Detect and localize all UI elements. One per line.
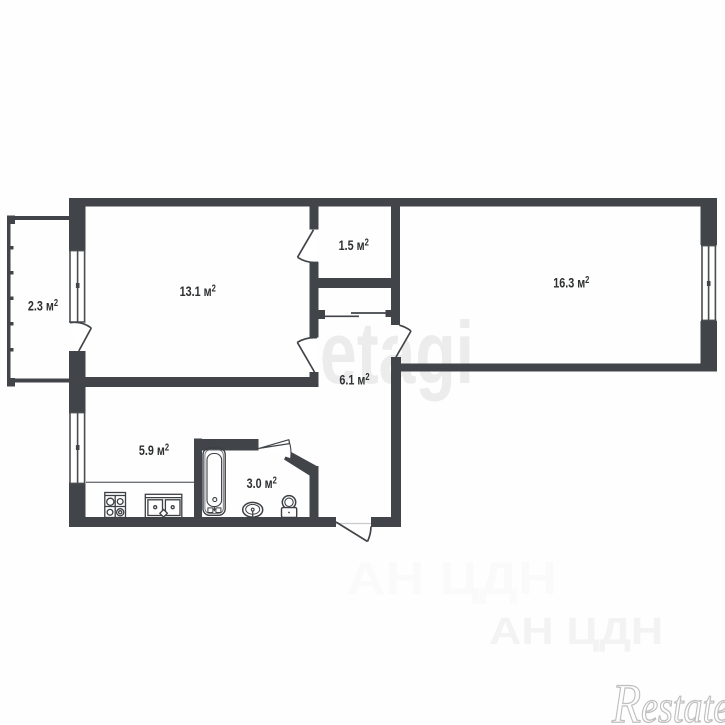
svg-text:6.1 м2: 6.1 м2 — [339, 371, 369, 388]
svg-text:16.3 м2: 16.3 м2 — [553, 274, 589, 291]
svg-text:АН ЦДН: АН ЦДН — [346, 552, 557, 604]
svg-text:Restate: Restate — [611, 674, 725, 725]
svg-text:АН ЦДН: АН ЦДН — [489, 609, 663, 652]
svg-text:13.1 м2: 13.1 м2 — [180, 283, 216, 300]
svg-text:1.5 м2: 1.5 м2 — [339, 237, 369, 254]
svg-text:2.3 м2: 2.3 м2 — [28, 297, 58, 314]
svg-text:5.9 м2: 5.9 м2 — [139, 441, 169, 458]
svg-text:3.0 м2: 3.0 м2 — [247, 474, 277, 491]
